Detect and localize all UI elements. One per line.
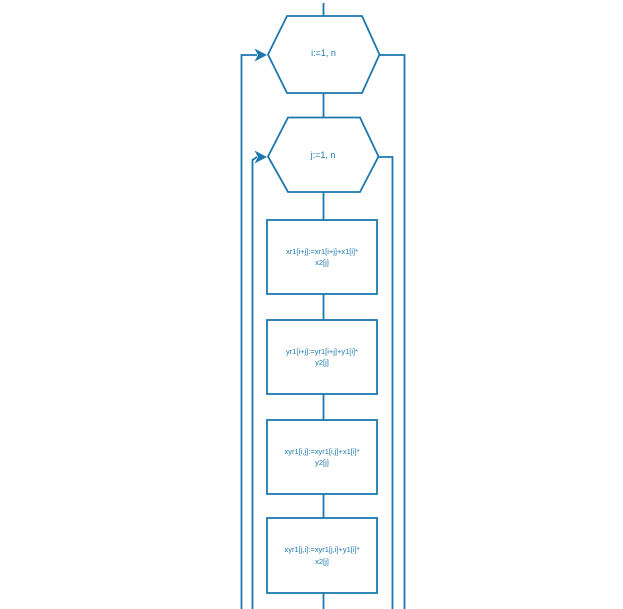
process-block-3-line2: y2[j] (315, 457, 329, 468)
process-block-2-line2: y2[j] (315, 357, 329, 368)
flowchart-drawing (0, 0, 623, 609)
process-block-1-line2: x2[j] (315, 257, 329, 268)
inner-loop-label: j:=1, n (268, 142, 378, 170)
outer-loop-return-line (242, 55, 258, 609)
process-block-4-line1: xyr1[j,i]:=xyr1[j,i]+y1[i]* (284, 544, 359, 555)
process-block-1-label: xr1[i+j]:=xr1[i+j]+x1[i]* x2[j] (268, 221, 376, 293)
process-block-2-label: yr1[i+j]:=yr1[i+j]+y1[i]* y2[j] (268, 321, 376, 393)
inner-loop-return-line (253, 157, 258, 609)
flowchart-canvas: i:=1, n j:=1, n xr1[i+j]:=xr1[i+j]+x1[i]… (0, 0, 623, 609)
process-block-2-line1: yr1[i+j]:=yr1[i+j]+y1[i]* (286, 346, 358, 357)
process-block-3-line1: xyr1[i,j]:=xyr1[i,j]+x1[i]* (284, 446, 359, 457)
process-block-4-label: xyr1[j,i]:=xyr1[j,i]+y1[i]* x2[j] (268, 519, 376, 592)
process-block-3-label: xyr1[i,j]:=xyr1[i,j]+x1[i]* y2[j] (268, 421, 376, 493)
process-block-1-line1: xr1[i+j]:=xr1[i+j]+x1[i]* (286, 246, 358, 257)
inner-loop-exit-line (379, 157, 393, 609)
process-block-4-line2: x2[j] (315, 556, 329, 567)
outer-loop-label: i:=1, n (268, 40, 379, 68)
